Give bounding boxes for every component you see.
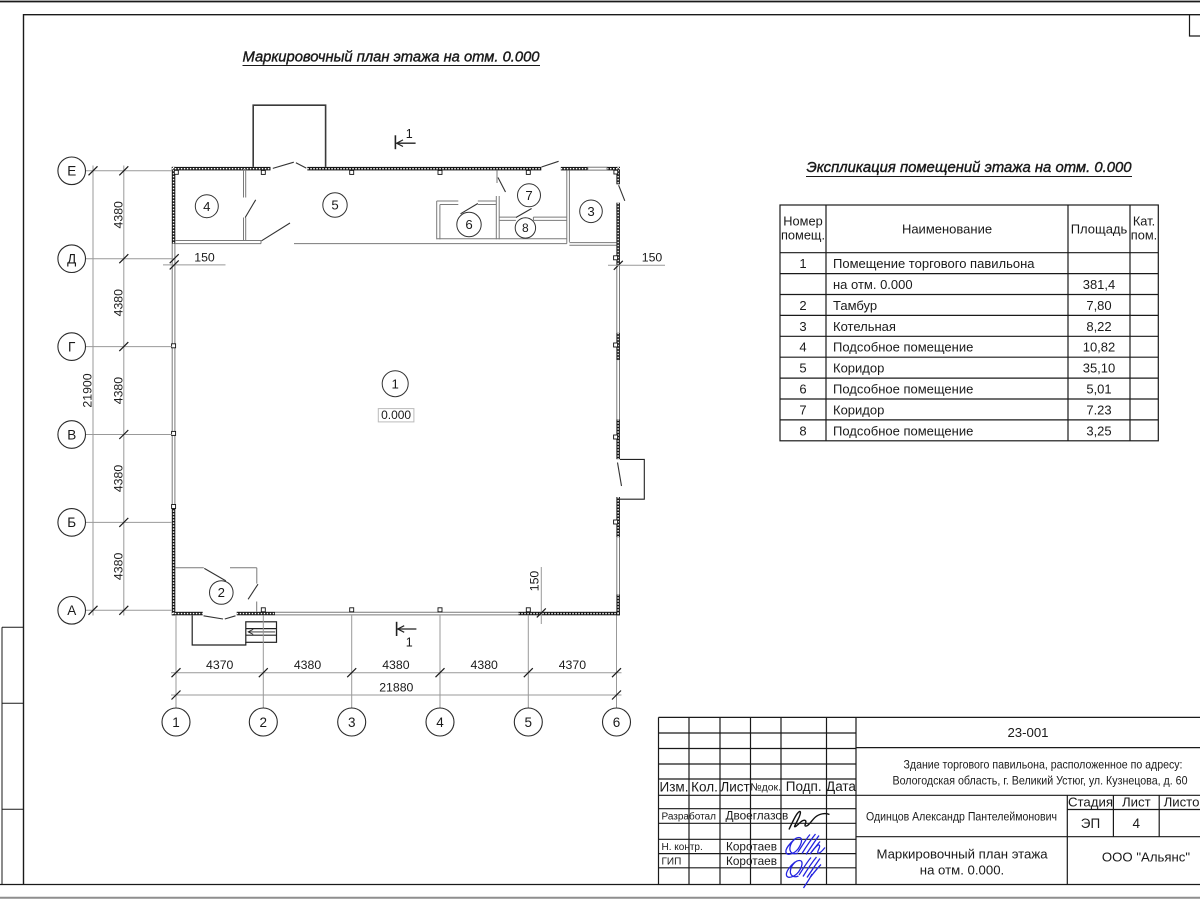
svg-text:Подсобное помещение: Подсобное помещение [833, 423, 973, 438]
svg-text:35,10: 35,10 [1083, 361, 1116, 376]
svg-text:Здание торгового павильона, ра: Здание торгового павильона, расположенно… [904, 758, 1183, 772]
svg-text:4380: 4380 [111, 553, 125, 581]
svg-text:4: 4 [203, 199, 210, 214]
svg-text:на отм. 0.000.: на отм. 0.000. [920, 863, 1004, 878]
svg-text:21880: 21880 [379, 680, 413, 694]
svg-text:Экспликация помещений этажа на: Экспликация помещений этажа на отм. 0.00… [807, 159, 1133, 176]
svg-text:5: 5 [331, 198, 338, 213]
svg-text:3: 3 [348, 715, 356, 730]
svg-text:Разработал: Разработал [662, 811, 717, 823]
svg-text:Коротаев: Коротаев [726, 854, 777, 868]
svg-text:5: 5 [525, 715, 533, 730]
svg-text:3: 3 [799, 319, 806, 334]
svg-text:4380: 4380 [294, 658, 322, 672]
svg-text:2: 2 [260, 715, 268, 730]
svg-text:Дата: Дата [826, 779, 856, 794]
svg-text:6: 6 [613, 715, 621, 730]
svg-text:Вологодская область, г. Велики: Вологодская область, г. Великий Устюг, у… [893, 774, 1188, 788]
svg-text:4380: 4380 [382, 658, 410, 672]
svg-text:150: 150 [642, 251, 663, 265]
svg-text:В: В [67, 427, 76, 442]
svg-text:4: 4 [1133, 816, 1141, 831]
svg-text:3,25: 3,25 [1086, 423, 1111, 438]
svg-text:Тамбур: Тамбур [833, 298, 877, 313]
svg-text:150: 150 [194, 251, 215, 265]
svg-text:Е: Е [67, 164, 76, 179]
svg-text:0.000: 0.000 [381, 408, 411, 422]
svg-text:7: 7 [799, 402, 806, 417]
svg-text:10,82: 10,82 [1083, 340, 1116, 355]
svg-text:1: 1 [406, 127, 413, 141]
svg-text:А: А [67, 603, 76, 618]
svg-text:4: 4 [799, 340, 806, 355]
svg-text:Изм.: Изм. [660, 780, 689, 795]
svg-text:ЭП: ЭП [1081, 816, 1100, 831]
svg-text:ООО "Альянс": ООО "Альянс" [1102, 850, 1190, 865]
svg-text:4380: 4380 [111, 377, 125, 405]
svg-text:Маркировочный план этажа на от: Маркировочный план этажа на отм. 0.000 [243, 49, 541, 66]
svg-text:8: 8 [522, 221, 529, 235]
svg-text:Коротаев: Коротаев [726, 840, 777, 854]
svg-text:4370: 4370 [206, 658, 234, 672]
svg-text:Коридор: Коридор [833, 402, 884, 417]
svg-text:пом.: пом. [1131, 228, 1157, 243]
svg-text:8,22: 8,22 [1086, 319, 1111, 334]
svg-text:Помещение торгового павильона: Помещение торгового павильона [833, 256, 1035, 271]
svg-text:4380: 4380 [111, 289, 125, 317]
svg-text:150: 150 [528, 571, 542, 592]
svg-text:Двоеглазов: Двоеглазов [726, 809, 789, 823]
svg-text:Н. контр.: Н. контр. [662, 842, 703, 853]
svg-text:381,4: 381,4 [1083, 277, 1116, 292]
svg-text:Площадь: Площадь [1071, 222, 1128, 237]
svg-text:Одинцов Александр Пантелеймоно: Одинцов Александр Пантелеймонович [866, 810, 1057, 824]
svg-text:5: 5 [799, 361, 806, 376]
svg-text:Д: Д [67, 252, 76, 267]
svg-text:Лист: Лист [1122, 795, 1151, 810]
svg-text:4: 4 [436, 715, 444, 730]
svg-text:Г: Г [68, 339, 76, 354]
svg-text:Кат.: Кат. [1133, 214, 1155, 229]
svg-text:1: 1 [406, 636, 413, 650]
svg-text:7,80: 7,80 [1086, 298, 1111, 313]
svg-text:2: 2 [799, 298, 806, 313]
svg-text:1: 1 [799, 256, 806, 271]
svg-text:Подсобное помещение: Подсобное помещение [833, 382, 973, 397]
svg-text:Номер: Номер [783, 214, 822, 229]
svg-text:Б: Б [67, 515, 76, 530]
svg-text:Подп.: Подп. [786, 779, 822, 794]
svg-text:6: 6 [799, 382, 806, 397]
svg-text:4370: 4370 [559, 658, 587, 672]
svg-text:Коридор: Коридор [833, 361, 884, 376]
svg-text:8: 8 [799, 423, 806, 438]
svg-text:Листов: Листов [1164, 795, 1200, 810]
svg-text:7.23: 7.23 [1086, 402, 1111, 417]
svg-text:1: 1 [392, 376, 399, 391]
svg-text:23-001: 23-001 [1007, 725, 1048, 740]
svg-text:ГИП: ГИП [662, 857, 682, 868]
svg-text:3: 3 [587, 204, 594, 219]
svg-text:Маркировочный план этажа: Маркировочный план этажа [876, 847, 1048, 862]
svg-text:7: 7 [525, 188, 532, 203]
svg-text:Стадия: Стадия [1068, 795, 1113, 810]
svg-text:4380: 4380 [111, 465, 125, 493]
svg-text:6: 6 [465, 217, 472, 232]
svg-text:1: 1 [172, 715, 180, 730]
svg-text:4380: 4380 [471, 658, 499, 672]
svg-text:4380: 4380 [111, 201, 125, 229]
svg-text:Лист: Лист [720, 780, 749, 795]
svg-text:21900: 21900 [81, 373, 95, 407]
svg-text:5,01: 5,01 [1086, 382, 1111, 397]
svg-text:помещ.: помещ. [781, 228, 825, 243]
svg-text:2: 2 [218, 585, 225, 600]
svg-text:Кол.: Кол. [691, 780, 718, 795]
svg-text:Наименование: Наименование [902, 222, 992, 237]
svg-text:№док.: №док. [750, 782, 781, 794]
svg-text:Котельная: Котельная [833, 319, 896, 334]
svg-text:на отм. 0.000: на отм. 0.000 [833, 277, 913, 292]
svg-text:Подсобное помещение: Подсобное помещение [833, 340, 973, 355]
